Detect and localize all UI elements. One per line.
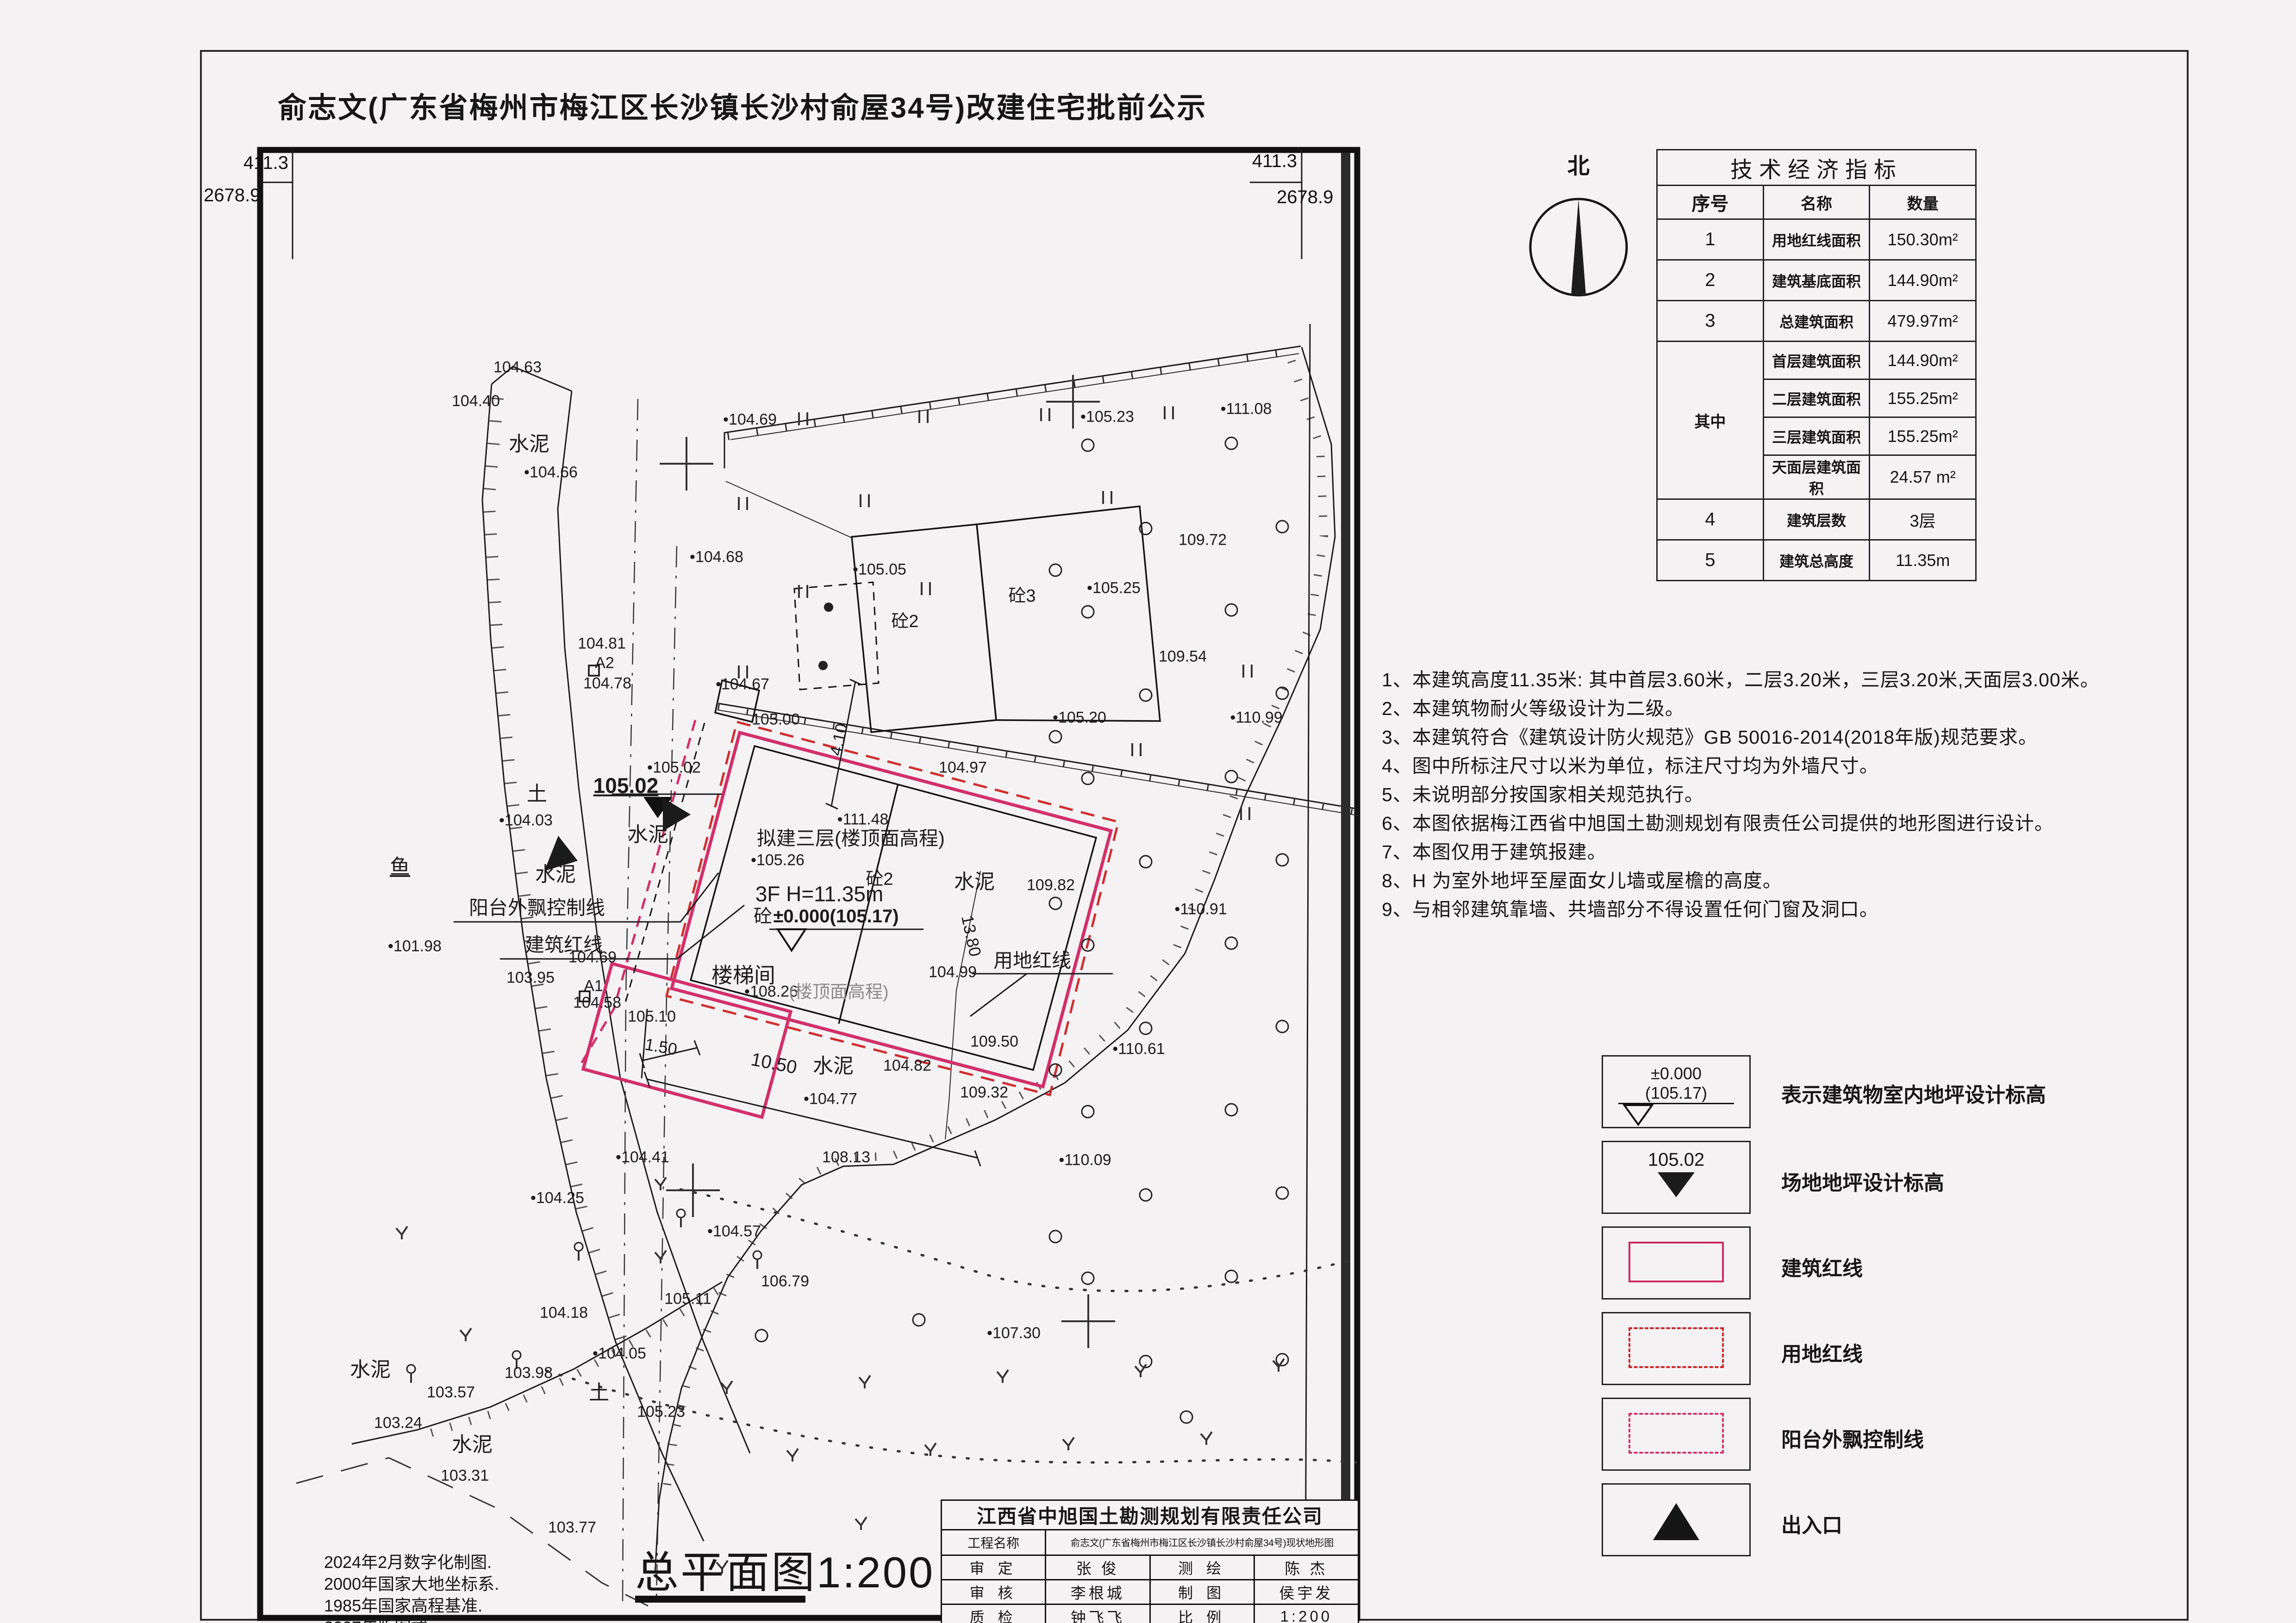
note-line: 6、本图依据梅江西省中旭国土勘测规划有限责任公司提供的地形图进行设计。 xyxy=(1382,809,2178,838)
tb-cell: 测 绘 xyxy=(1150,1555,1254,1580)
building-redline-icon xyxy=(1628,1242,1724,1282)
legend-indoor-elevation-value: ±0.000 (105.17) xyxy=(1618,1064,1734,1104)
row-no: 1 xyxy=(1657,219,1764,260)
row-name: 天面层建筑面积 xyxy=(1763,455,1870,499)
col-header-qty: 数量 xyxy=(1870,186,1976,219)
row-name: 建筑层数 xyxy=(1763,499,1870,540)
row-qty: 144.90m² xyxy=(1870,342,1976,379)
note-line: 1、本建筑高度11.35米: 其中首层3.60米，二层3.20米，三层3.20米… xyxy=(1382,665,2178,694)
tb-cell: 钟飞飞 xyxy=(1046,1604,1150,1623)
row-qty: 479.97m² xyxy=(1870,301,1976,342)
grid-coord-x-tr: 411.3 xyxy=(1228,151,1297,172)
col-header-name: 名称 xyxy=(1763,186,1870,219)
grid-coord-y-tl: 2678.9 xyxy=(204,185,260,206)
open-triangle-icon xyxy=(1620,1104,1675,1127)
existing-building-2 xyxy=(852,524,996,732)
plot-redline-outline xyxy=(667,722,1118,1095)
plan-scale: 1:200 xyxy=(817,1548,935,1597)
legend-label-site-elevation: 场地地坪设计标高 xyxy=(1781,1166,1944,1196)
survey-note-line: 2007年版图式. xyxy=(324,1617,499,1623)
row-name: 用地红线面积 xyxy=(1763,219,1870,260)
building-inner-outline xyxy=(691,746,1096,1070)
tb-cell: 1:200 xyxy=(1254,1604,1358,1623)
row-qty: 24.57 m² xyxy=(1870,455,1976,499)
legend-label-balcony-line: 阳台外飘控制线 xyxy=(1781,1423,1924,1453)
row-name: 建筑基底面积 xyxy=(1763,260,1870,301)
north-label: 北 xyxy=(1523,155,1634,178)
note-line: 5、未说明部分按国家相关规范执行。 xyxy=(1382,780,2178,809)
tb-cell: 李根城 xyxy=(1046,1580,1150,1604)
note-line: 2、本建筑物耐火等级设计为二级。 xyxy=(1382,694,2178,723)
row-name: 三层建筑面积 xyxy=(1763,417,1870,455)
page-title: 俞志文(广东省梅州市梅江区长沙镇长沙村俞屋34号)改建住宅批前公示 xyxy=(278,84,1207,126)
legend-box-balcony-line xyxy=(1602,1398,1751,1471)
legend-box-plot-redline xyxy=(1602,1312,1751,1385)
row-qty: 150.30m² xyxy=(1870,219,1976,260)
plan-title-underline xyxy=(635,1596,805,1603)
grid-coord-x-tl: 411.3 xyxy=(217,153,288,174)
plan-title-text: 总平面图 xyxy=(635,1548,817,1597)
tb-cell: 制 图 xyxy=(1150,1580,1254,1604)
filled-triangle-down-icon xyxy=(1658,1172,1695,1197)
note-line: 8、H 为室外地坪至屋面女儿墙或屋檐的高度。 xyxy=(1382,866,2178,895)
row-qty: 3层 xyxy=(1870,499,1976,540)
company-name: 江西省中旭国土勘测规划有限责任公司 xyxy=(942,1500,1359,1530)
tb-cell: 审 定 xyxy=(942,1555,1046,1580)
tb-cell: 质 检 xyxy=(942,1604,1046,1623)
note-line: 7、本图仅用于建筑报建。 xyxy=(1382,838,2178,866)
row-qty: 11.35m xyxy=(1870,540,1976,581)
tb-cell: 陈 杰 xyxy=(1254,1555,1358,1580)
legend-site-elevation-value: 105.02 xyxy=(1603,1150,1749,1170)
plot-redline-icon xyxy=(1628,1327,1724,1368)
drawing-sheet: 俞志文(广东省梅州市梅江区长沙镇长沙村俞屋34号)改建住宅批前公示 411.3 … xyxy=(0,0,2296,1623)
row-no: 4 xyxy=(1657,499,1764,540)
plan-title: 总平面图1:200 xyxy=(635,1537,935,1600)
survey-note-line: 2000年国家大地坐标系. xyxy=(324,1573,499,1595)
col-header-no: 序号 xyxy=(1657,186,1764,219)
legend-box-building-redline xyxy=(1602,1226,1751,1300)
tb-cell: 张 俊 xyxy=(1046,1555,1150,1580)
note-line: 9、与相邻建筑靠墙、共墙部分不得设置任何门窗及洞口。 xyxy=(1382,895,2178,924)
existing-building-3 xyxy=(977,506,1160,721)
compass-icon xyxy=(1523,178,1634,298)
balcony-control-line-icon xyxy=(1628,1413,1724,1454)
row-no: 2 xyxy=(1657,260,1764,301)
tb-cell: 审 核 xyxy=(942,1580,1046,1604)
row-qty: 155.25m² xyxy=(1870,379,1976,417)
entrance-triangle xyxy=(663,798,691,831)
survey-note-line: 2024年2月数字化制图. xyxy=(324,1551,499,1573)
map-frame xyxy=(260,150,1357,1618)
tb-cell: 侯宇发 xyxy=(1254,1580,1358,1604)
notes-block: 1、本建筑高度11.35米: 其中首层3.60米，二层3.20米，三层3.20米… xyxy=(1382,665,2178,924)
indicators-table: 技术经济指标 序号 名称 数量 1 用地红线面积 150.30m² 2 建筑基底… xyxy=(1656,149,1977,581)
row-name: 首层建筑面积 xyxy=(1763,342,1870,379)
project-label: 工程名称 xyxy=(942,1530,1046,1555)
legend-label-plot-redline: 用地红线 xyxy=(1781,1337,1863,1367)
subtotal-label: 其中 xyxy=(1657,342,1764,499)
legend-box-indoor-elevation: ±0.000 (105.17) xyxy=(1602,1055,1751,1128)
title-block: 江西省中旭国土勘测规划有限责任公司 工程名称 俞志文(广东省梅州市梅江区长沙镇长… xyxy=(941,1499,1359,1623)
tb-cell: 比 例 xyxy=(1150,1604,1254,1623)
row-qty: 155.25m² xyxy=(1870,417,1976,455)
legend-box-entrance xyxy=(1602,1483,1751,1556)
legend-label-entrance: 出入口 xyxy=(1781,1509,1842,1538)
row-name: 二层建筑面积 xyxy=(1763,379,1870,417)
grid-coord-y-tr: 2678.9 xyxy=(1277,187,1333,208)
legend-label-indoor-elevation: 表示建筑物室内地坪设计标高 xyxy=(1781,1078,2046,1108)
survey-notes: 2024年2月数字化制图.2000年国家大地坐标系.1985年国家高程基准.20… xyxy=(324,1551,499,1623)
legend-label-building-redline: 建筑红线 xyxy=(1781,1252,1863,1281)
row-name: 总建筑面积 xyxy=(1763,301,1870,342)
entrance-triangle-2 xyxy=(544,836,578,871)
row-name: 建筑总高度 xyxy=(1763,540,1870,581)
note-line: 3、本建筑符合《建筑设计防火规范》GB 50016-2014(2018年版)规范… xyxy=(1382,723,2178,752)
note-line: 4、图中所标注尺寸以米为单位，标注尺寸均为外墙尺寸。 xyxy=(1382,752,2178,780)
row-no: 3 xyxy=(1657,301,1764,342)
row-qty: 144.90m² xyxy=(1870,260,1976,301)
project-name: 俞志文(广东省梅州市梅江区长沙镇长沙村俞屋34号)现状地形图 xyxy=(1046,1530,1359,1555)
survey-note-line: 1985年国家高程基准. xyxy=(324,1595,499,1617)
entrance-triangle-icon xyxy=(1653,1503,1699,1540)
row-no: 5 xyxy=(1657,540,1764,581)
indicators-title: 技术经济指标 xyxy=(1657,150,1976,186)
north-compass: 北 xyxy=(1523,155,1634,304)
legend-box-site-elevation: 105.02 xyxy=(1602,1141,1751,1214)
